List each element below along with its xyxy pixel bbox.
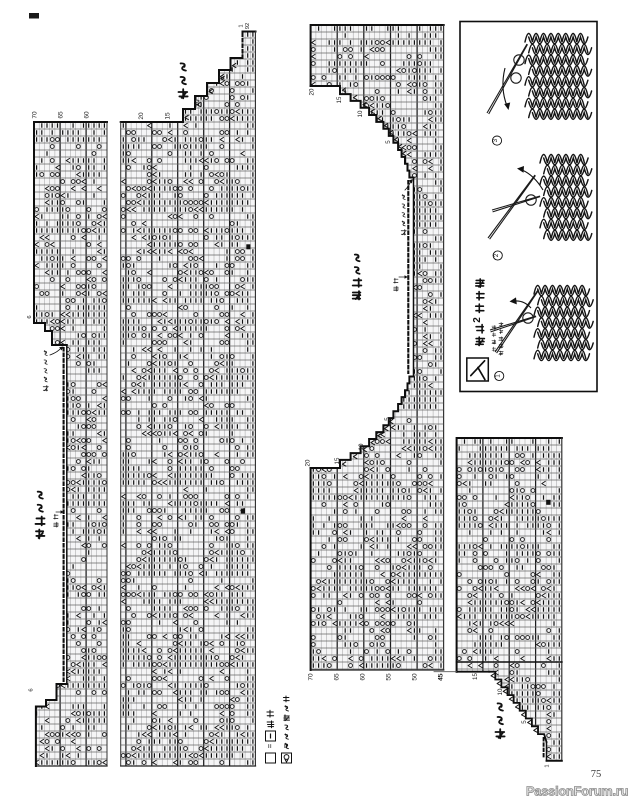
svg-text:5: 5 <box>384 417 391 421</box>
svg-text:10: 10 <box>358 443 365 450</box>
svg-text:20: 20 <box>309 88 316 95</box>
svg-text:6: 6 <box>27 315 33 318</box>
svg-text:65: 65 <box>334 673 341 681</box>
svg-text:60: 60 <box>360 673 367 681</box>
svg-text:60: 60 <box>84 111 91 119</box>
svg-text:15: 15 <box>472 673 479 680</box>
svg-text:15: 15 <box>165 112 172 120</box>
svg-text:15: 15 <box>336 96 343 103</box>
svg-text:65: 65 <box>58 111 65 119</box>
svg-text:1: 1 <box>494 374 501 378</box>
svg-text:20: 20 <box>138 112 145 120</box>
svg-text:1: 1 <box>545 764 551 767</box>
svg-text:50: 50 <box>412 673 419 681</box>
svg-text:70: 70 <box>32 111 39 119</box>
svg-text:45: 45 <box>438 674 445 681</box>
svg-text:15: 15 <box>334 457 341 464</box>
svg-text:2: 2 <box>493 253 500 257</box>
svg-text:=: = <box>266 743 275 748</box>
svg-text:75: 75 <box>591 769 602 780</box>
svg-text:5: 5 <box>385 140 392 144</box>
svg-text:2: 2 <box>472 317 483 323</box>
svg-text:PassionForum.ru: PassionForum.ru <box>526 784 628 799</box>
svg-text:1: 1 <box>239 24 245 27</box>
svg-text:70: 70 <box>308 673 315 681</box>
svg-text:55: 55 <box>386 673 393 681</box>
svg-text:20: 20 <box>305 459 312 466</box>
svg-text:6: 6 <box>29 688 35 691</box>
svg-text:5: 5 <box>521 720 528 724</box>
svg-text:10: 10 <box>357 110 364 117</box>
svg-text:92: 92 <box>245 23 251 29</box>
svg-text:3: 3 <box>492 138 499 142</box>
